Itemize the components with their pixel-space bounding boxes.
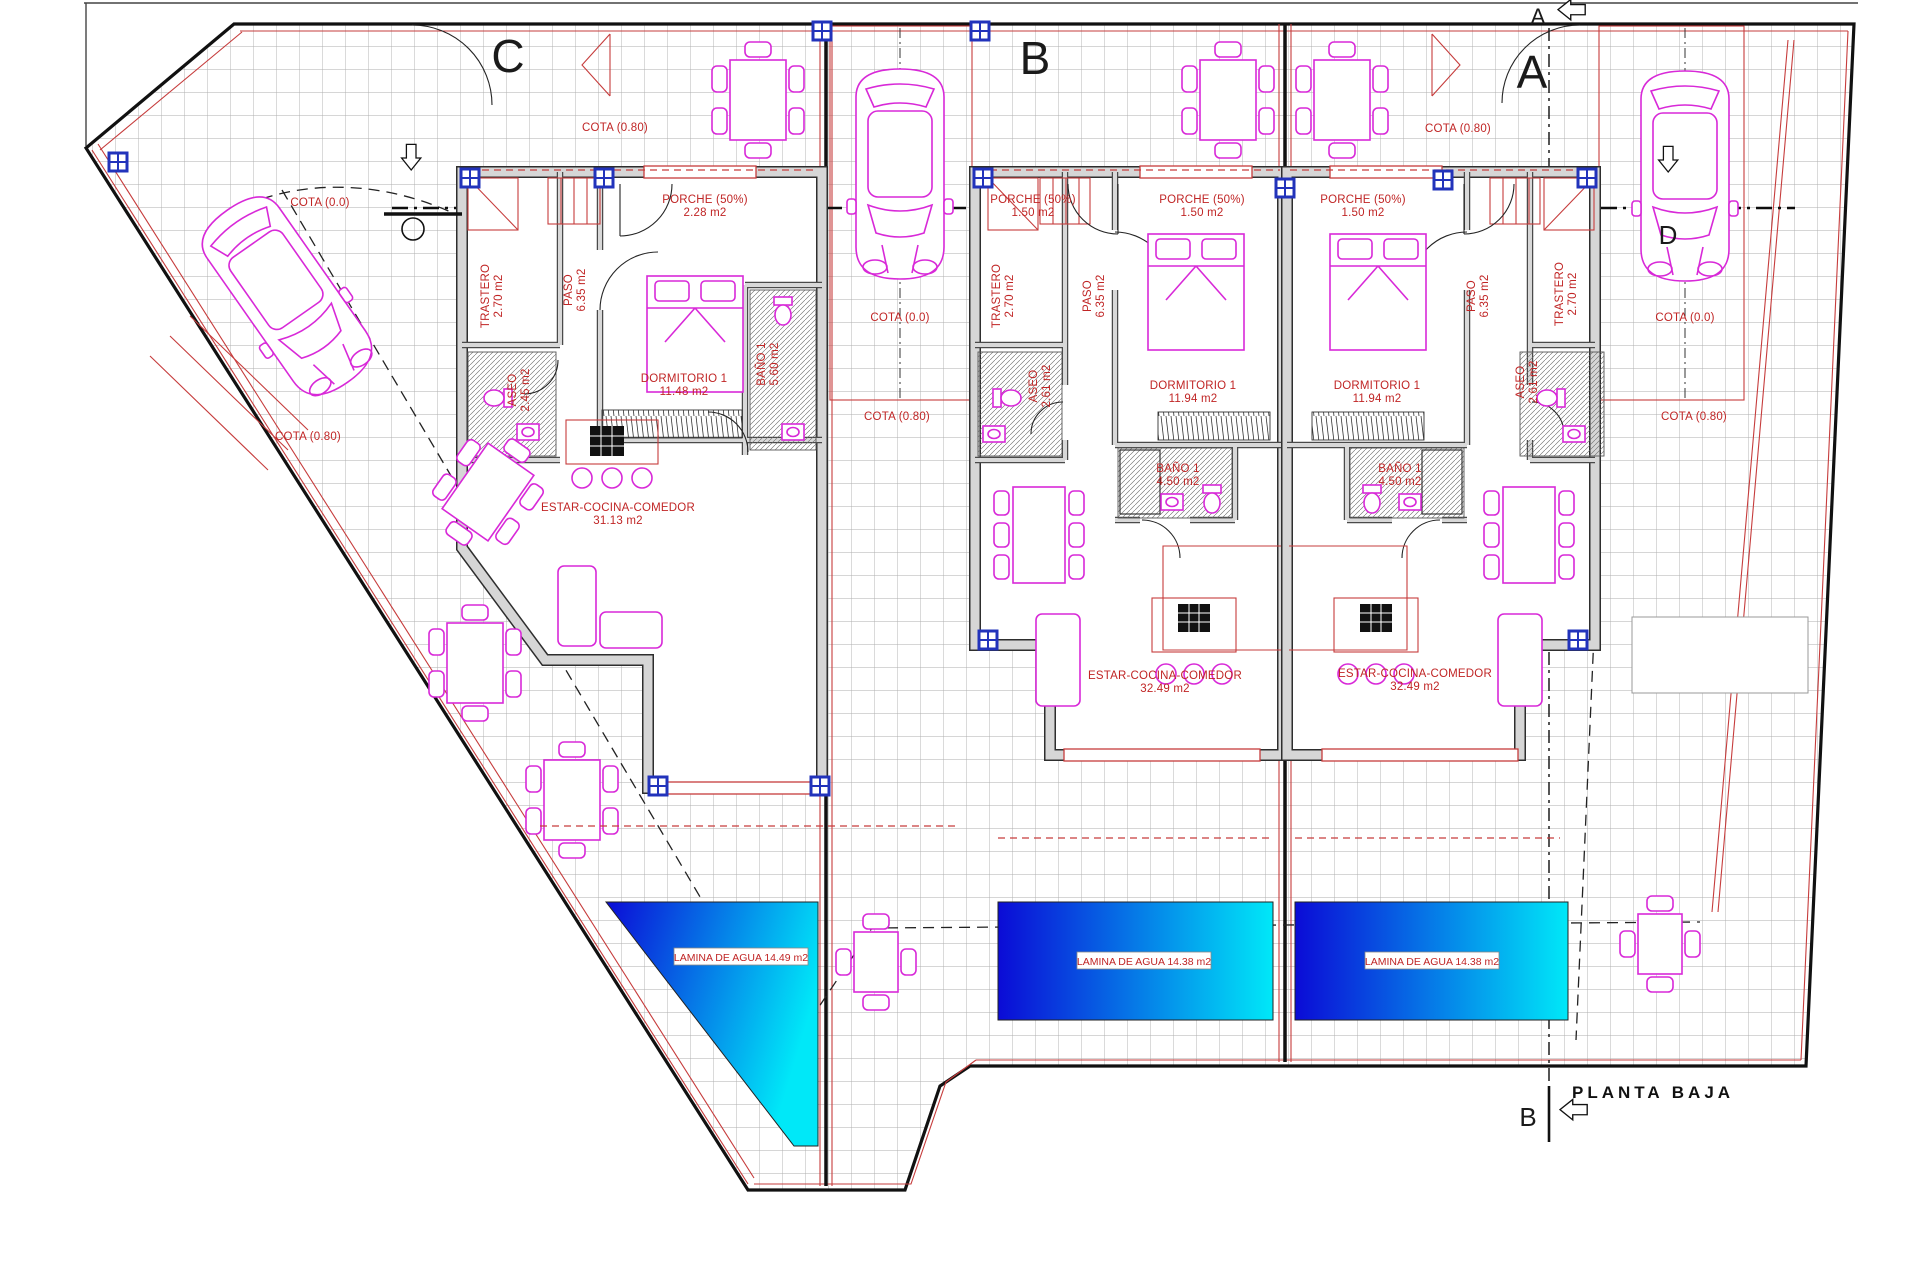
floor-plan-drawing: LAMINA DE AGUA 14.49 m2 LAMINA DE AGUA 1… [0,0,1920,1280]
svg-text:1.50 m2: 1.50 m2 [1342,207,1385,219]
car-right [1632,71,1738,281]
svg-text:31.13 m2: 31.13 m2 [593,515,643,527]
cota-right-garden: COTA (0.80) [1661,411,1727,423]
svg-text:BAÑO 1: BAÑO 1 [1156,462,1199,475]
cota-right-drive: COTA (0.0) [1655,312,1714,324]
svg-text:11.48 m2: 11.48 m2 [660,386,709,398]
svg-text:PORCHE (50%): PORCHE (50%) [990,194,1075,206]
marker-b-top: B [1020,32,1051,84]
svg-text:6.35 m2: 6.35 m2 [576,269,588,312]
blank-box [1632,617,1808,693]
svg-text:4.50 m2: 4.50 m2 [1157,476,1200,488]
wardrobe-middle [1158,412,1270,440]
window-dorm-right [1330,166,1442,178]
sink-aseo-right [1563,426,1585,442]
stool [632,468,652,488]
sink-middle [1161,494,1183,510]
svg-text:11.94 m2: 11.94 m2 [1353,393,1402,405]
cota-middle-drive: COTA (0.0) [870,312,929,324]
svg-text:ESTAR-COCINA-COMEDOR: ESTAR-COCINA-COMEDOR [1088,670,1242,682]
sink-right [1399,494,1421,510]
svg-text:ASEO: ASEO [1515,366,1527,399]
car-middle [847,69,953,279]
sofa-left [558,566,596,646]
marker-b-bottom: B [1519,1102,1536,1132]
node [1276,179,1294,197]
svg-text:PORCHE (50%): PORCHE (50%) [1320,194,1405,206]
svg-text:BAÑO 1: BAÑO 1 [755,342,768,385]
node [1434,171,1452,189]
pool-left-label: LAMINA DE AGUA 14.49 m2 [674,948,808,965]
svg-text:6.35 m2: 6.35 m2 [1479,275,1491,318]
dining-table-right [1484,487,1574,583]
sofa-middle [1036,614,1080,706]
svg-text:BAÑO 1: BAÑO 1 [1378,462,1421,475]
sink-aseo-middle [983,426,1005,442]
svg-text:2.70 m2: 2.70 m2 [493,275,505,318]
page-title: PLANTA BAJA [1572,1083,1734,1102]
node [1569,631,1587,649]
svg-text:2.28 m2: 2.28 m2 [684,207,727,219]
pool-right-label: LAMINA DE AGUA 14.38 m2 [1365,952,1499,969]
svg-text:6.35 m2: 6.35 m2 [1095,275,1107,318]
svg-text:32.49 m2: 32.49 m2 [1140,683,1190,695]
node [649,777,667,795]
cota-topleft-garden: COTA (0.80) [582,122,648,134]
svg-text:2.70 m2: 2.70 m2 [1567,273,1579,316]
marker-c-top: C [491,30,524,82]
svg-text:ESTAR-COCINA-COMEDOR: ESTAR-COCINA-COMEDOR [541,502,695,514]
marker-d: D [1659,220,1678,250]
sink-left [782,424,804,440]
svg-text:5.60 m2: 5.60 m2 [769,343,781,386]
svg-text:32.49 m2: 32.49 m2 [1390,681,1440,693]
toilet-aseo-middle [993,389,1021,407]
svg-text:11.94 m2: 11.94 m2 [1169,393,1218,405]
label-aseo-right: ASEO 2.61 m2 [1515,361,1540,404]
cota-left-drive: COTA (0.0) [290,197,349,209]
label-paso-right: PASO 6.35 m2 [1466,275,1491,318]
svg-text:ASEO: ASEO [1028,370,1040,403]
node [1578,169,1596,187]
cota-left-garden: COTA (0.80) [275,431,341,443]
cota-topright-garden: COTA (0.80) [1425,123,1491,135]
node [595,169,613,187]
sliding-door-right [1322,749,1518,761]
node [813,22,831,40]
svg-text:ASEO: ASEO [507,374,519,407]
svg-text:TRASTERO: TRASTERO [1554,262,1566,326]
svg-text:DORMITORIO 1: DORMITORIO 1 [1150,380,1237,392]
stool [572,468,592,488]
cota-middle-garden: COTA (0.80) [864,411,930,423]
label-aseo-middle: ASEO 2.61 m2 [1028,365,1053,408]
wardrobe-right [1312,412,1424,440]
svg-text:TRASTERO: TRASTERO [991,264,1003,328]
sink-aseo-left [517,424,539,440]
dining-table-middle [994,487,1084,583]
toilet-left [774,297,792,325]
toilet-right [1363,485,1381,513]
node [109,153,127,171]
marker-a-top: A [1517,46,1548,98]
window-dorm-middle [1140,166,1252,178]
sliding-door-left [662,782,812,794]
arrow-b-bottom-icon [1560,1099,1587,1119]
svg-text:DORMITORIO 1: DORMITORIO 1 [641,373,728,385]
svg-text:2.61 m2: 2.61 m2 [1528,361,1540,404]
floor-plan-sheet: LAMINA DE AGUA 14.49 m2 LAMINA DE AGUA 1… [0,0,1920,1280]
toilet-aseo-right [1537,389,1565,407]
svg-text:2.45 m2: 2.45 m2 [520,369,532,412]
toilet-middle [1203,485,1221,513]
svg-text:2.61 m2: 2.61 m2 [1041,365,1053,408]
label-aseo-left: ASEO 2.45 m2 [507,369,532,412]
sofa-left-2 [600,612,662,648]
hob-right [1360,604,1392,632]
hob-left [590,426,624,456]
node [461,169,479,187]
svg-text:4.50 m2: 4.50 m2 [1379,476,1422,488]
pool-right-label-text: LAMINA DE AGUA 14.38 m2 [1365,956,1499,968]
stool [602,468,622,488]
hob-middle [1178,604,1210,632]
node [971,22,989,40]
svg-text:PORCHE (50%): PORCHE (50%) [1159,194,1244,206]
svg-text:DORMITORIO 1: DORMITORIO 1 [1334,380,1421,392]
svg-text:2.70 m2: 2.70 m2 [1004,275,1016,318]
pool-left-label-text: LAMINA DE AGUA 14.49 m2 [674,952,808,964]
svg-text:PASO: PASO [563,274,575,306]
sliding-door-middle [1064,749,1260,761]
svg-text:1.50 m2: 1.50 m2 [1181,207,1224,219]
sofa-right [1498,614,1542,706]
pool-middle-label-text: LAMINA DE AGUA 14.38 m2 [1077,956,1211,968]
window-dorm-left [644,166,756,178]
marker-a-small: A [1531,4,1546,29]
node [979,631,997,649]
label-paso-middle: PASO 6.35 m2 [1082,275,1107,318]
node [811,777,829,795]
svg-text:1.50 m2: 1.50 m2 [1012,207,1055,219]
bed-middle [1148,234,1244,350]
label-paso-left: PASO 6.35 m2 [563,269,588,312]
svg-text:PASO: PASO [1082,280,1094,312]
node [974,169,992,187]
svg-text:PORCHE (50%): PORCHE (50%) [662,194,747,206]
svg-text:ESTAR-COCINA-COMEDOR: ESTAR-COCINA-COMEDOR [1338,668,1492,680]
bed-right [1330,234,1426,350]
svg-text:TRASTERO: TRASTERO [480,264,492,328]
svg-text:PASO: PASO [1466,280,1478,312]
pool-middle-label: LAMINA DE AGUA 14.38 m2 [1077,952,1211,969]
